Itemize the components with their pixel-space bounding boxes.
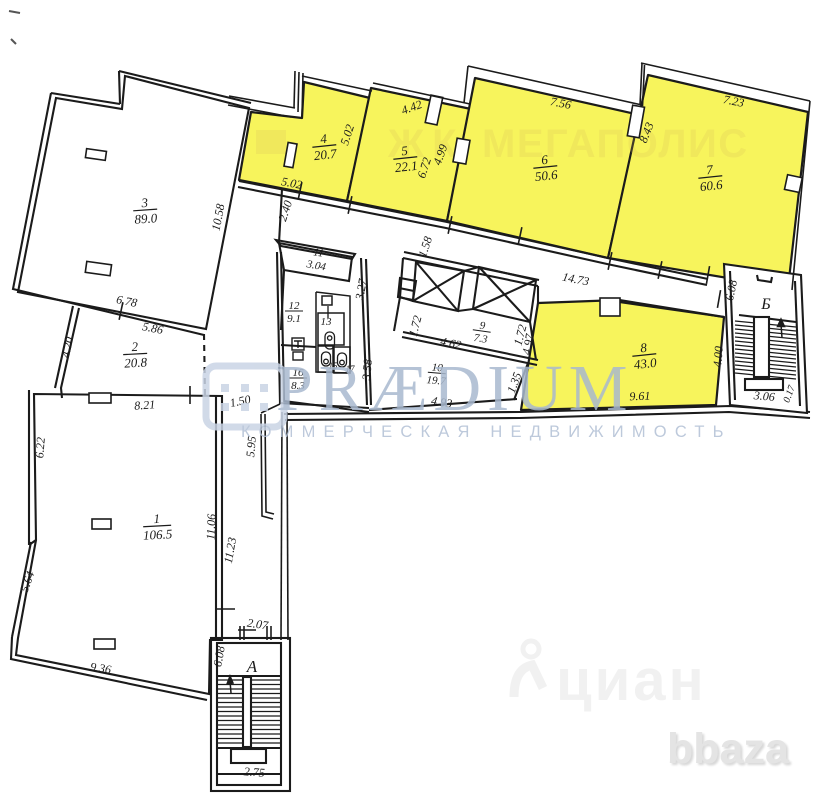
svg-text:А: А (246, 657, 258, 676)
svg-text:3.06: 3.06 (752, 388, 775, 404)
svg-text:9.1: 9.1 (287, 313, 301, 325)
svg-text:6.22: 6.22 (32, 437, 48, 459)
svg-text:КОММЕРЧЕСКАЯ НЕДВИЖИМОСТЬ: КОММЕРЧЕСКАЯ НЕДВИЖИМОСТЬ (241, 423, 732, 441)
svg-text:50.6: 50.6 (534, 167, 559, 184)
svg-text:106.5: 106.5 (143, 526, 173, 543)
svg-text:89.0: 89.0 (134, 210, 158, 227)
svg-text:Б: Б (760, 296, 771, 313)
svg-text:2: 2 (131, 339, 139, 354)
svg-text:МЕГАПОЛИС: МЕГАПОЛИС (482, 122, 749, 166)
svg-text:bbaza: bbaza (667, 725, 790, 773)
svg-text:PRÆDIUM: PRÆDIUM (276, 352, 633, 425)
svg-text:12: 12 (289, 300, 301, 312)
svg-text:7.3: 7.3 (473, 332, 489, 346)
svg-text:2.75: 2.75 (243, 764, 265, 779)
svg-text:4.00: 4.00 (710, 346, 726, 368)
svg-text:11: 11 (312, 246, 324, 260)
svg-text:20.7: 20.7 (313, 146, 338, 163)
svg-text:43.0: 43.0 (633, 355, 658, 372)
svg-text:20.8: 20.8 (124, 354, 148, 370)
svg-text:циан: циан (556, 648, 707, 713)
svg-text:1: 1 (153, 511, 160, 526)
svg-text:8.21: 8.21 (134, 397, 156, 412)
svg-text:13: 13 (321, 316, 333, 328)
svg-text:11.06: 11.06 (204, 514, 219, 541)
svg-text:60.6: 60.6 (699, 177, 724, 194)
